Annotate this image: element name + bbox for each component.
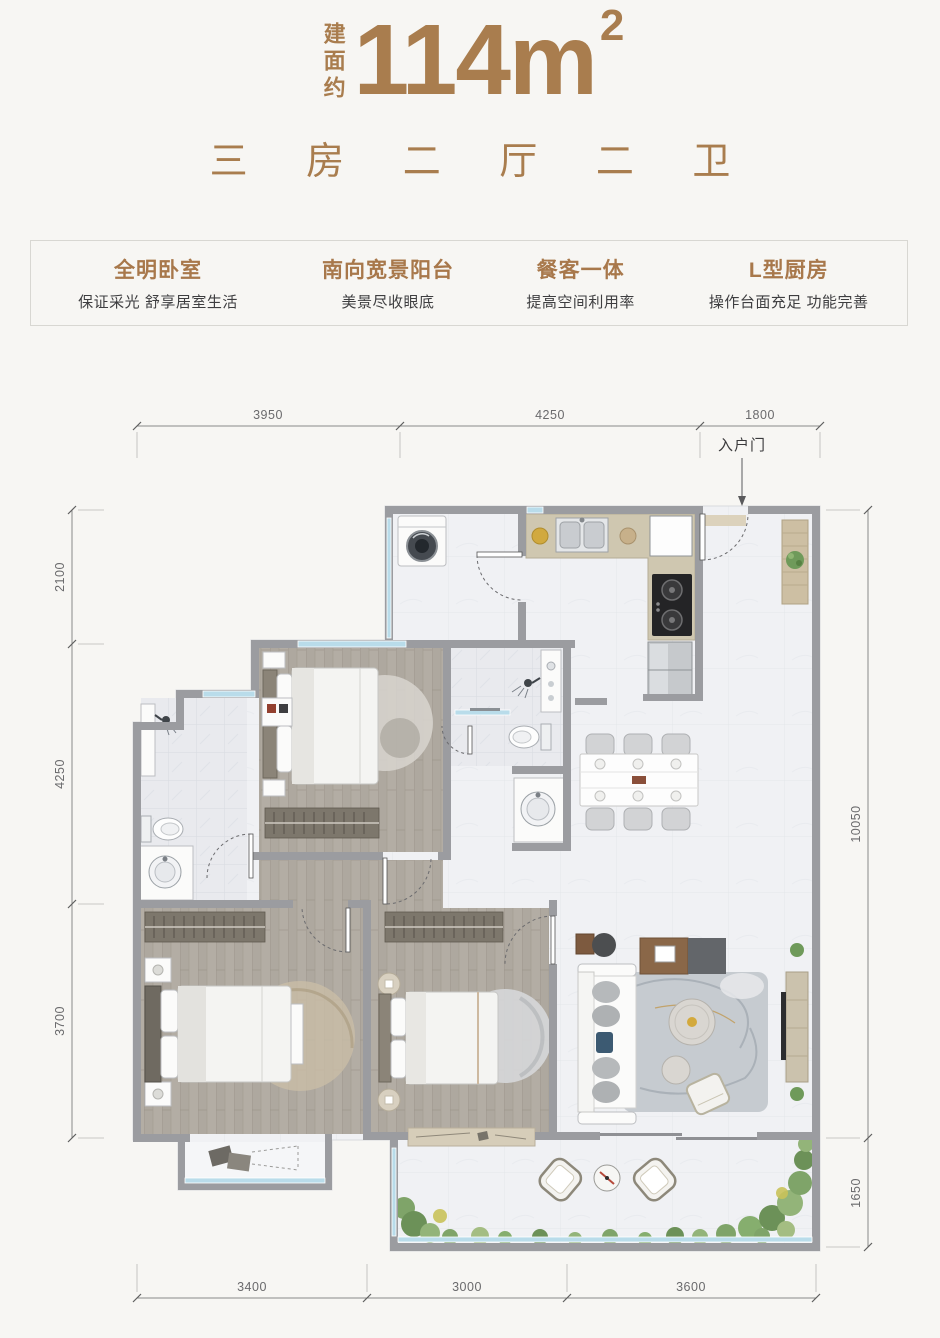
area-exponent: 2 [600, 1, 622, 50]
sofa-cushion [592, 1057, 620, 1079]
dining-chair [624, 734, 652, 756]
dim-label: 2100 [53, 562, 67, 592]
sofa-back [578, 972, 594, 1112]
bath2-bench [141, 704, 155, 776]
dim-label: 3700 [53, 1006, 67, 1036]
cutting-board-icon [650, 516, 692, 556]
pillow [277, 726, 292, 772]
window [203, 691, 255, 697]
sofa-cushion [592, 1005, 620, 1027]
nightstand [263, 780, 285, 796]
master-door-leaf [346, 908, 350, 952]
dining-chair [586, 808, 614, 830]
feature-l-kitchen: L型厨房 操作台面充足 功能完善 [670, 250, 907, 316]
dim-label: 1650 [849, 1178, 863, 1208]
window [392, 1148, 396, 1236]
nightstand [263, 652, 285, 668]
feature-desc: 操作台面充足 功能完善 [670, 291, 907, 312]
side-table [576, 934, 594, 954]
bedroom2-door-leaf [383, 858, 387, 904]
bedroom3-bay-sill [408, 1128, 535, 1146]
tv-icon [781, 992, 786, 1060]
plant-icon [790, 943, 804, 957]
pillow [161, 990, 178, 1032]
floor-plan-svg: 3950 4250 1800 入户门 2100 4250 3700 10050 [0, 388, 940, 1338]
dining-chair [662, 808, 690, 830]
feature-desc: 美景尽收眼底 [285, 291, 491, 312]
dim-label: 4250 [53, 759, 67, 789]
area-value: 114m2 [354, 14, 619, 106]
tv-console [786, 972, 808, 1082]
dining-chair [662, 734, 690, 756]
pillow [391, 998, 406, 1036]
dim-label: 3400 [237, 1280, 267, 1294]
feature-bright-bedrooms: 全明卧室 保证采光 舒享居室生活 [31, 250, 285, 316]
dim-label: 4250 [535, 408, 565, 422]
laptop-icon [655, 946, 675, 962]
feature-title: 全明卧室 [31, 254, 285, 284]
window [387, 518, 391, 638]
pillow [391, 1040, 406, 1078]
toilet-icon [141, 816, 151, 842]
area-title: 建面约 114m2 [322, 14, 619, 106]
table-decor [687, 1017, 697, 1027]
feature-dining-living: 餐客一体 提高空间利用率 [491, 250, 671, 316]
feature-desc: 保证采光 舒享居室生活 [31, 291, 285, 312]
header: 建面约 114m2 三 房 二 厅 二 卫 [0, 14, 940, 185]
sofa-cushion [592, 981, 620, 1003]
dining-area [580, 734, 698, 830]
shower-head-icon [524, 679, 532, 687]
dining-chair [624, 808, 652, 830]
balcony-glazing [398, 1237, 812, 1242]
entry-plant-icon [786, 551, 804, 569]
features-bar: 全明卧室 保证采光 舒享居室生活 南向宽景阳台 美景尽收眼底 餐客一体 提高空间… [30, 240, 908, 326]
bath1-door-leaf [468, 726, 472, 754]
desk-extension [688, 938, 726, 974]
table-centerpiece [632, 776, 646, 784]
counter-bowl [620, 528, 636, 544]
bed-bench [291, 1004, 303, 1064]
bath2-door-leaf [249, 834, 253, 878]
sofa-cushion [592, 1081, 620, 1103]
bay-window-glass [185, 1178, 325, 1183]
feature-title: 餐客一体 [491, 254, 671, 284]
bay-window-floor [185, 1142, 325, 1183]
dim-left: 2100 4250 3700 [53, 506, 104, 1142]
door-mat [704, 515, 746, 526]
feature-title: L型厨房 [670, 254, 907, 284]
window [527, 507, 543, 513]
layout-subtitle: 三 房 二 厅 二 卫 [0, 130, 940, 185]
counter-decor [532, 528, 548, 544]
toilet-icon [541, 724, 551, 750]
bed-headboard [145, 986, 161, 1082]
entry-door-leaf [700, 514, 705, 560]
dim-label: 3950 [253, 408, 283, 422]
dim-right: 10050 1650 [826, 506, 872, 1251]
bay-art [227, 1153, 251, 1172]
dim-label: 10050 [849, 805, 863, 842]
feature-desc: 提高空间利用率 [491, 291, 671, 312]
floorplan-page: 建面约 114m2 三 房 二 厅 二 卫 全明卧室 保证采光 舒享居室生活 南… [0, 0, 940, 1338]
bedroom3-door-leaf [551, 916, 555, 964]
plant-icon [790, 1087, 804, 1101]
feature-south-balcony: 南向宽景阳台 美景尽收眼底 [285, 250, 491, 316]
balcony-door-leaf [477, 552, 522, 557]
blue-pillow [596, 1032, 613, 1053]
window [298, 641, 406, 647]
area-prefix-label: 建面约 [322, 22, 344, 103]
dim-label: 1800 [745, 408, 775, 422]
feature-title: 南向宽景阳台 [285, 254, 491, 284]
dim-label: 3600 [676, 1280, 706, 1294]
entrance-arrow-icon [738, 496, 746, 506]
bed-headboard [379, 994, 391, 1082]
service-balcony [398, 516, 446, 566]
dim-label: 3000 [452, 1280, 482, 1294]
dining-chair [586, 734, 614, 756]
entrance-label: 入户门 [718, 437, 766, 454]
armchair [592, 933, 616, 957]
floorplan-area: 3950 4250 1800 入户门 2100 4250 3700 10050 [0, 388, 940, 1338]
dim-bottom: 3400 3000 3600 [133, 1264, 820, 1302]
entrance-callout: 入户门 [718, 437, 766, 506]
side-round-table [662, 1056, 690, 1084]
pillow [161, 1036, 178, 1078]
